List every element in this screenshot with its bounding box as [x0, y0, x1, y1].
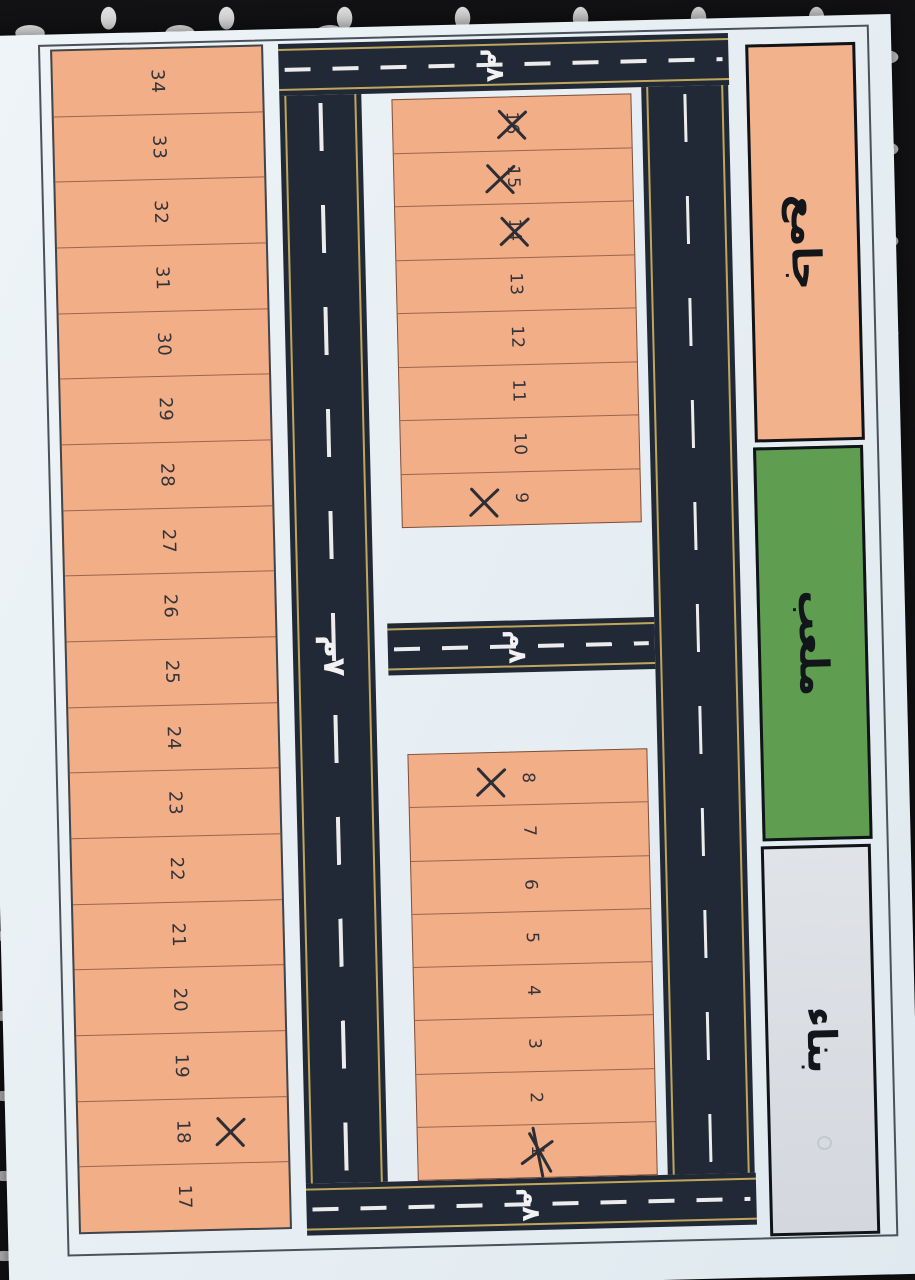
plot-number: 15 — [503, 165, 524, 189]
plot-number: 31 — [151, 266, 173, 291]
plot-32: 32 — [55, 177, 266, 248]
plot-number: 30 — [153, 331, 175, 356]
x-mark — [208, 1108, 253, 1153]
plot-11: 11 — [399, 361, 638, 420]
plot-number: 10 — [510, 432, 531, 456]
plot-number: 25 — [161, 659, 183, 684]
plot-17: 17 — [79, 1162, 290, 1233]
plot-27: 27 — [63, 505, 274, 576]
plot-number: 24 — [163, 725, 185, 750]
plot-3: 3 — [415, 1014, 654, 1073]
plot-number: 18 — [172, 1119, 194, 1144]
building-block: بناء — [761, 844, 880, 1237]
road-width-label-left: ٧م — [295, 599, 374, 713]
plot-24: 24 — [68, 702, 279, 773]
plot-number: 17 — [174, 1185, 196, 1210]
plot-number: 22 — [166, 856, 188, 881]
plot-26: 26 — [65, 571, 276, 642]
plot-number: 12 — [507, 325, 528, 349]
plot-number: 13 — [506, 272, 527, 296]
plot-31: 31 — [57, 242, 268, 313]
plot-5: 5 — [412, 908, 651, 967]
plot-number: 8 — [518, 772, 538, 784]
plot-number: 14 — [504, 218, 525, 242]
road-width-label-top: ٨م — [469, 38, 522, 91]
plot-20: 20 — [75, 965, 286, 1036]
plot-22: 22 — [71, 833, 282, 904]
playground-label: ملعب — [789, 590, 838, 697]
plot-12: 12 — [398, 307, 637, 366]
plot-number: 16 — [502, 112, 523, 136]
paper-spot — [817, 1136, 832, 1150]
x-mark — [469, 759, 514, 804]
plot-2: 2 — [416, 1068, 655, 1127]
plot-25: 25 — [67, 636, 278, 707]
plot-1: 1 — [418, 1121, 657, 1180]
plot-16: 16 — [392, 94, 631, 152]
plot-19: 19 — [76, 1030, 287, 1101]
plot-number: 1 — [527, 1145, 547, 1157]
plot-number: 27 — [158, 528, 180, 553]
plot-18: 18 — [78, 1096, 289, 1167]
plot-number: 33 — [148, 134, 170, 159]
plot-13: 13 — [396, 254, 635, 313]
plot-number: 29 — [155, 397, 177, 422]
plot-10: 10 — [400, 414, 639, 473]
plot-6: 6 — [411, 855, 650, 914]
lower-plot-block: 8 7 6 5 4 3 2 1 — [407, 748, 657, 1181]
plot-number: 6 — [520, 879, 540, 891]
plot-14: 14 — [395, 200, 634, 259]
plot-number: 11 — [508, 379, 529, 403]
plot-number: 7 — [519, 825, 539, 837]
plot-29: 29 — [60, 374, 271, 445]
plot-23: 23 — [70, 768, 281, 839]
plot-28: 28 — [62, 439, 273, 510]
playground-block: ملعب — [753, 445, 873, 842]
plot-number: 26 — [159, 594, 181, 619]
x-mark — [462, 478, 507, 523]
plot-15: 15 — [394, 147, 633, 206]
plot-number: 23 — [164, 791, 186, 816]
plot-7: 7 — [410, 801, 649, 860]
plot-21: 21 — [73, 899, 284, 970]
plot-4: 4 — [414, 961, 653, 1020]
plot-number: 5 — [522, 932, 542, 944]
fabric-background: 34 33 32 31 30 29 28 27 26 25 24 23 22 2… — [0, 0, 915, 1280]
plot-number: 20 — [169, 988, 191, 1013]
paper-sheet: 34 33 32 31 30 29 28 27 26 25 24 23 22 2… — [0, 14, 915, 1280]
upper-plot-block: 16 15 14 13 12 11 10 9 — [391, 93, 641, 528]
mosque-label: جامع — [781, 194, 829, 291]
plot-number: 19 — [171, 1053, 193, 1078]
plot-9: 9 — [402, 468, 641, 527]
plot-number: 32 — [150, 200, 172, 225]
building-label: بناء — [797, 1006, 845, 1074]
plot-number: 2 — [526, 1092, 546, 1104]
plot-33: 33 — [54, 111, 265, 182]
plot-number: 4 — [523, 985, 543, 997]
plot-30: 30 — [59, 308, 270, 379]
road-width-label-bottom: ٨م — [505, 1178, 558, 1231]
left-plot-strip: 34 33 32 31 30 29 28 27 26 25 24 23 22 2… — [50, 44, 292, 1234]
plot-8: 8 — [408, 749, 647, 807]
road-width-label-middle: ٨م — [491, 620, 544, 673]
plot-number: 9 — [511, 492, 531, 504]
plot-number: 28 — [156, 463, 178, 488]
plot-34: 34 — [52, 46, 263, 116]
plot-number: 21 — [167, 922, 189, 947]
plot-number: 34 — [147, 69, 169, 94]
mosque-block: جامع — [745, 42, 865, 443]
plot-number: 3 — [524, 1038, 544, 1050]
